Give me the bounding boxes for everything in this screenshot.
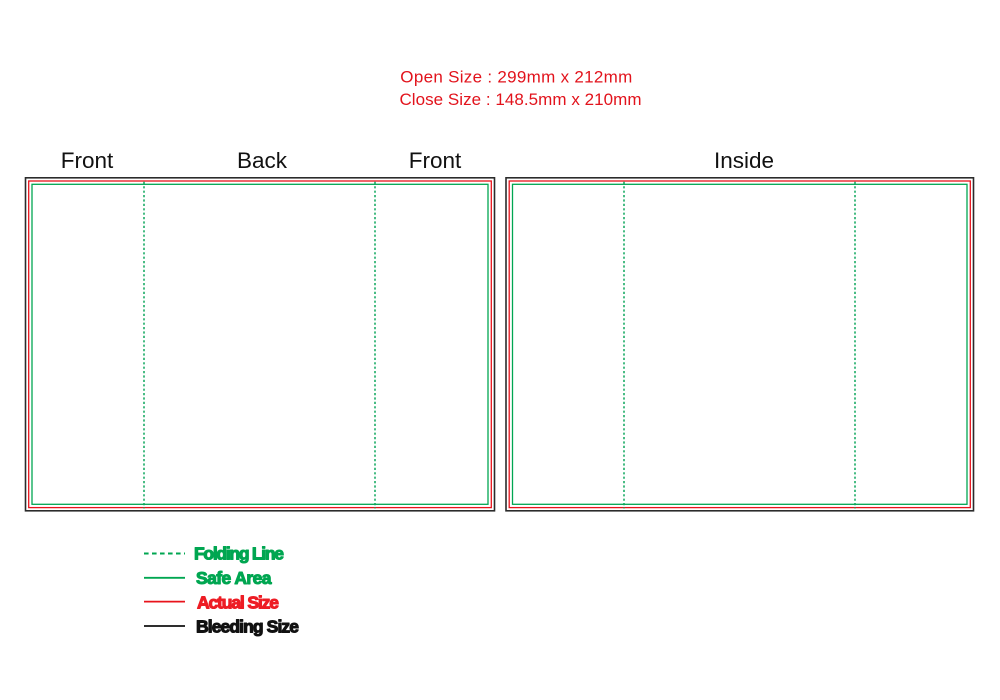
svg-text:Bleeding Size: Bleeding Size bbox=[196, 617, 299, 637]
svg-text:Front: Front bbox=[61, 148, 114, 173]
svg-text:Folding Line: Folding Line bbox=[194, 544, 284, 564]
svg-text:Back: Back bbox=[237, 148, 288, 173]
svg-text:Front: Front bbox=[409, 148, 462, 173]
svg-text:Close Size : 148.5mm x 210mm: Close Size : 148.5mm x 210mm bbox=[400, 90, 642, 109]
svg-text:Safe Area: Safe Area bbox=[196, 568, 272, 588]
svg-text:Inside: Inside bbox=[714, 148, 774, 173]
svg-text:Actual Size: Actual Size bbox=[197, 593, 279, 613]
svg-text:Open Size : 299mm x 212mm: Open Size : 299mm x 212mm bbox=[400, 67, 632, 86]
